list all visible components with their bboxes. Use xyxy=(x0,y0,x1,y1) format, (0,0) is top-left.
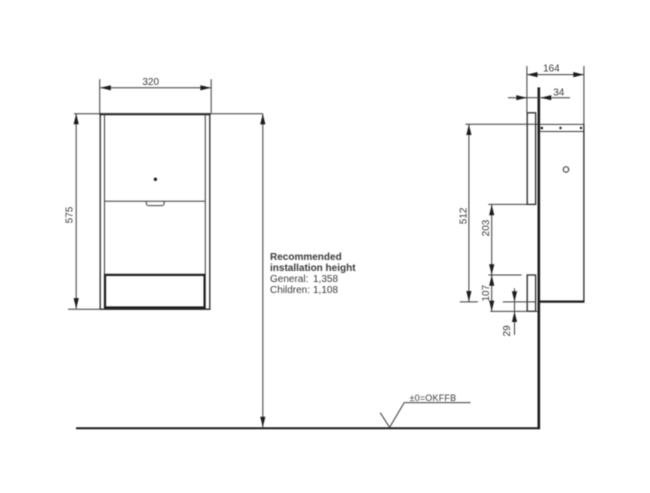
svg-text:107: 107 xyxy=(481,284,492,301)
svg-text:installation height: installation height xyxy=(270,263,356,274)
svg-text:34: 34 xyxy=(553,88,565,99)
svg-text:1,108: 1,108 xyxy=(313,285,338,296)
svg-text:203: 203 xyxy=(481,219,492,236)
svg-text:±0=OKFFB: ±0=OKFFB xyxy=(410,393,457,403)
svg-text:General:: General: xyxy=(270,274,308,285)
svg-text:575: 575 xyxy=(65,206,76,223)
svg-text:29: 29 xyxy=(502,325,513,337)
svg-text:Children:: Children: xyxy=(270,285,310,296)
svg-text:1,358: 1,358 xyxy=(313,274,338,285)
svg-text:320: 320 xyxy=(142,77,159,88)
svg-text:512: 512 xyxy=(458,207,469,224)
svg-text:164: 164 xyxy=(543,64,560,75)
svg-text:Recommended: Recommended xyxy=(270,252,342,263)
